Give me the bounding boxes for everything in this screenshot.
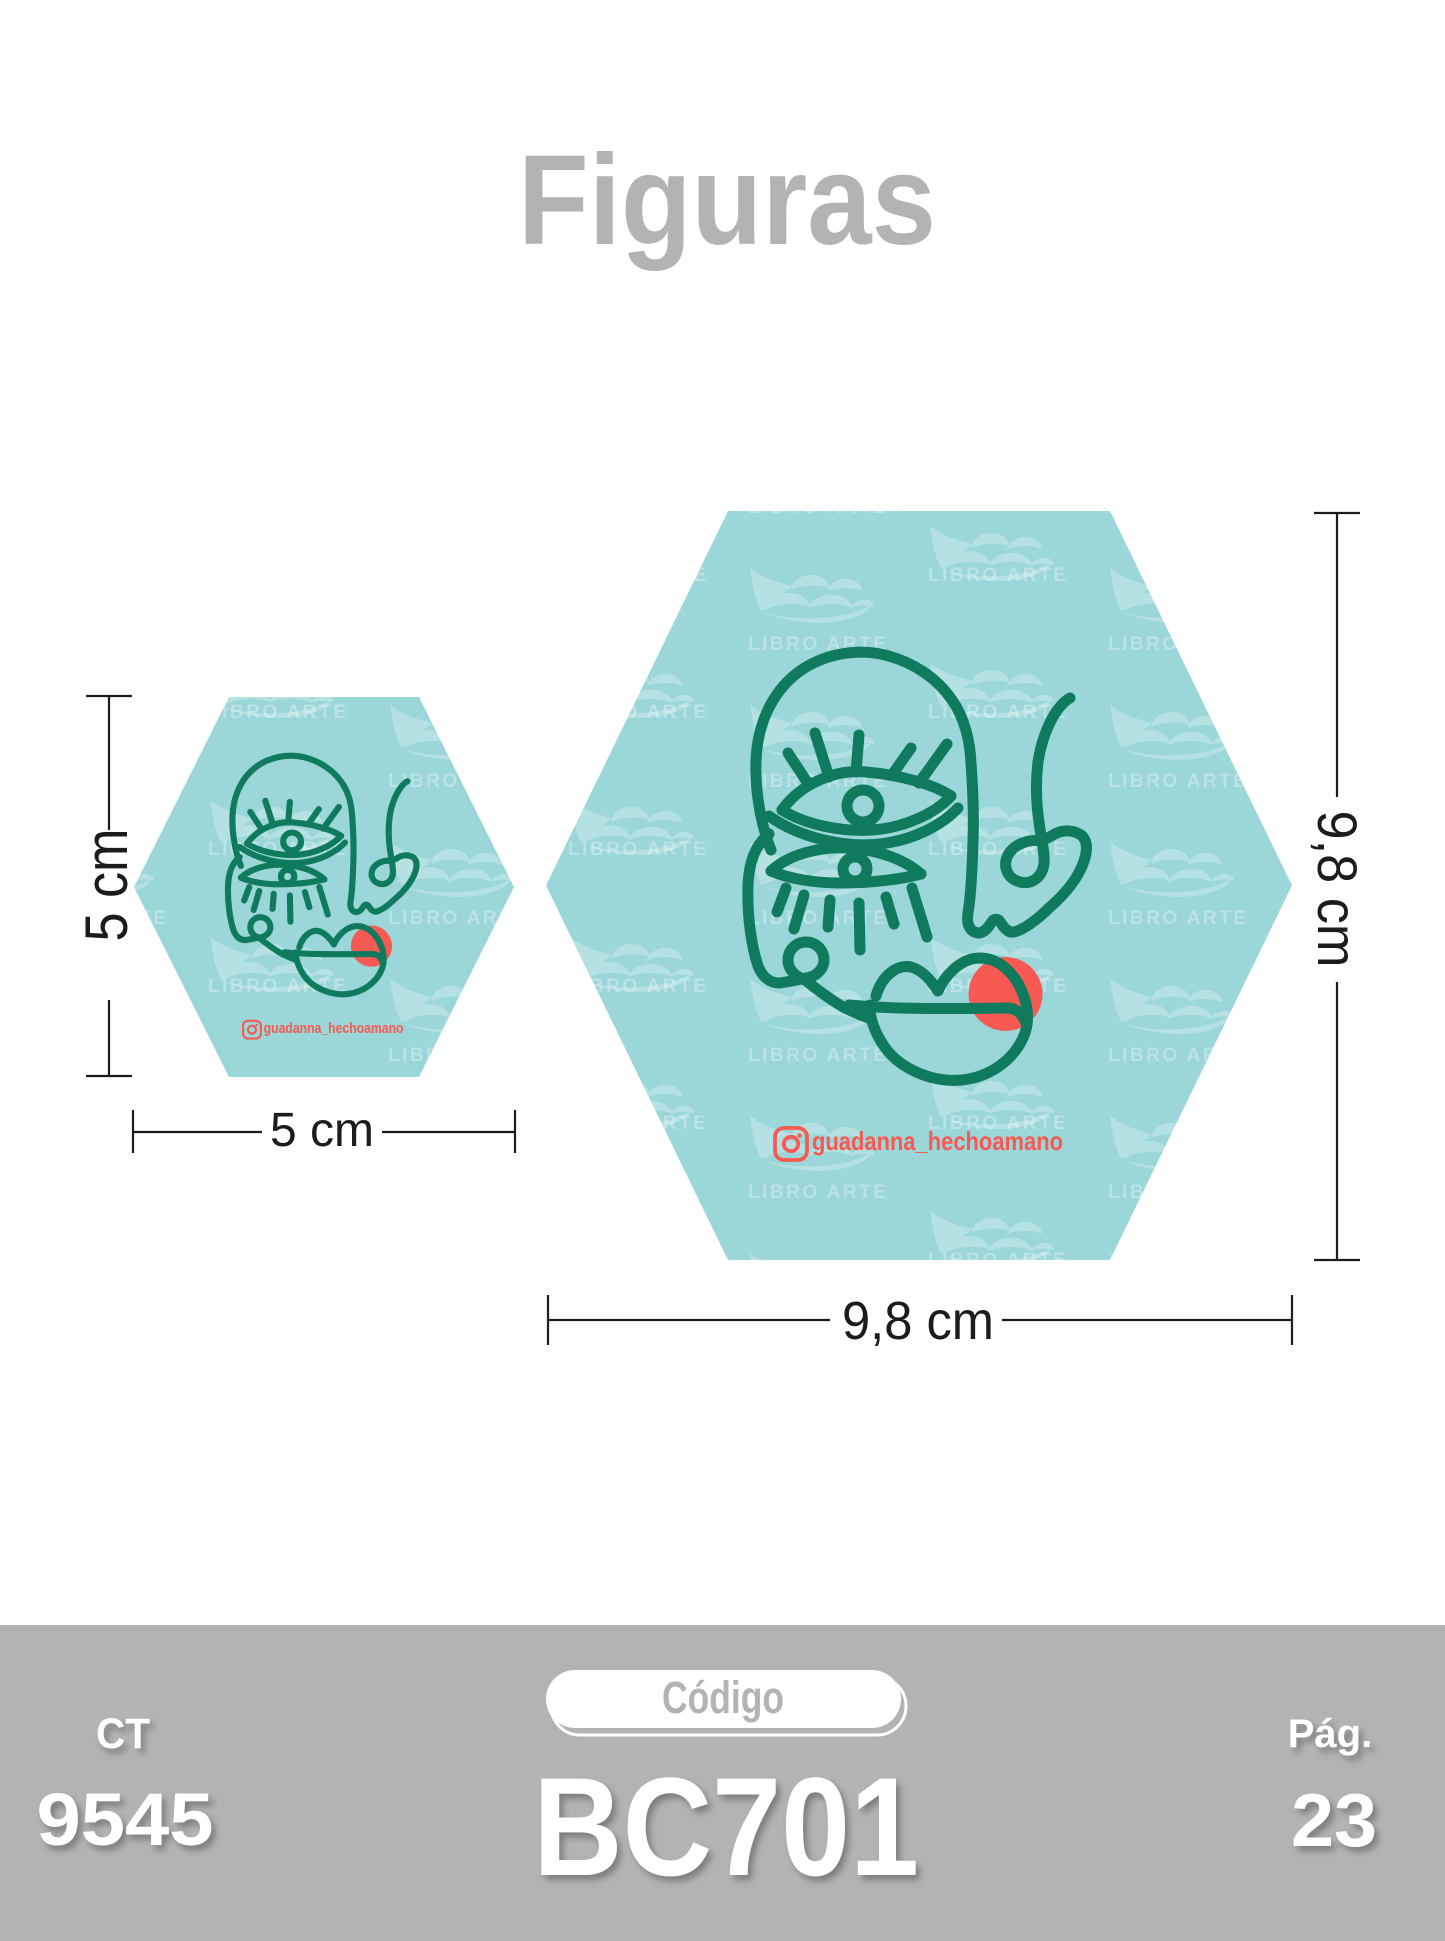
svg-text:9,8 cm: 9,8 cm: [1306, 811, 1369, 968]
svg-text:Pág.: Pág.: [1288, 1712, 1372, 1756]
svg-text:9,8 cm: 9,8 cm: [842, 1291, 994, 1351]
svg-text:BC701: BC701: [533, 1748, 919, 1905]
svg-text:Código: Código: [662, 1672, 784, 1723]
svg-text:5 cm: 5 cm: [270, 1104, 374, 1157]
svg-text:Figuras: Figuras: [518, 129, 936, 272]
svg-text:23: 23: [1291, 1778, 1377, 1862]
svg-text:5 cm: 5 cm: [73, 829, 140, 942]
svg-text:CT: CT: [96, 1710, 150, 1758]
svg-text:9545: 9545: [37, 1778, 214, 1861]
